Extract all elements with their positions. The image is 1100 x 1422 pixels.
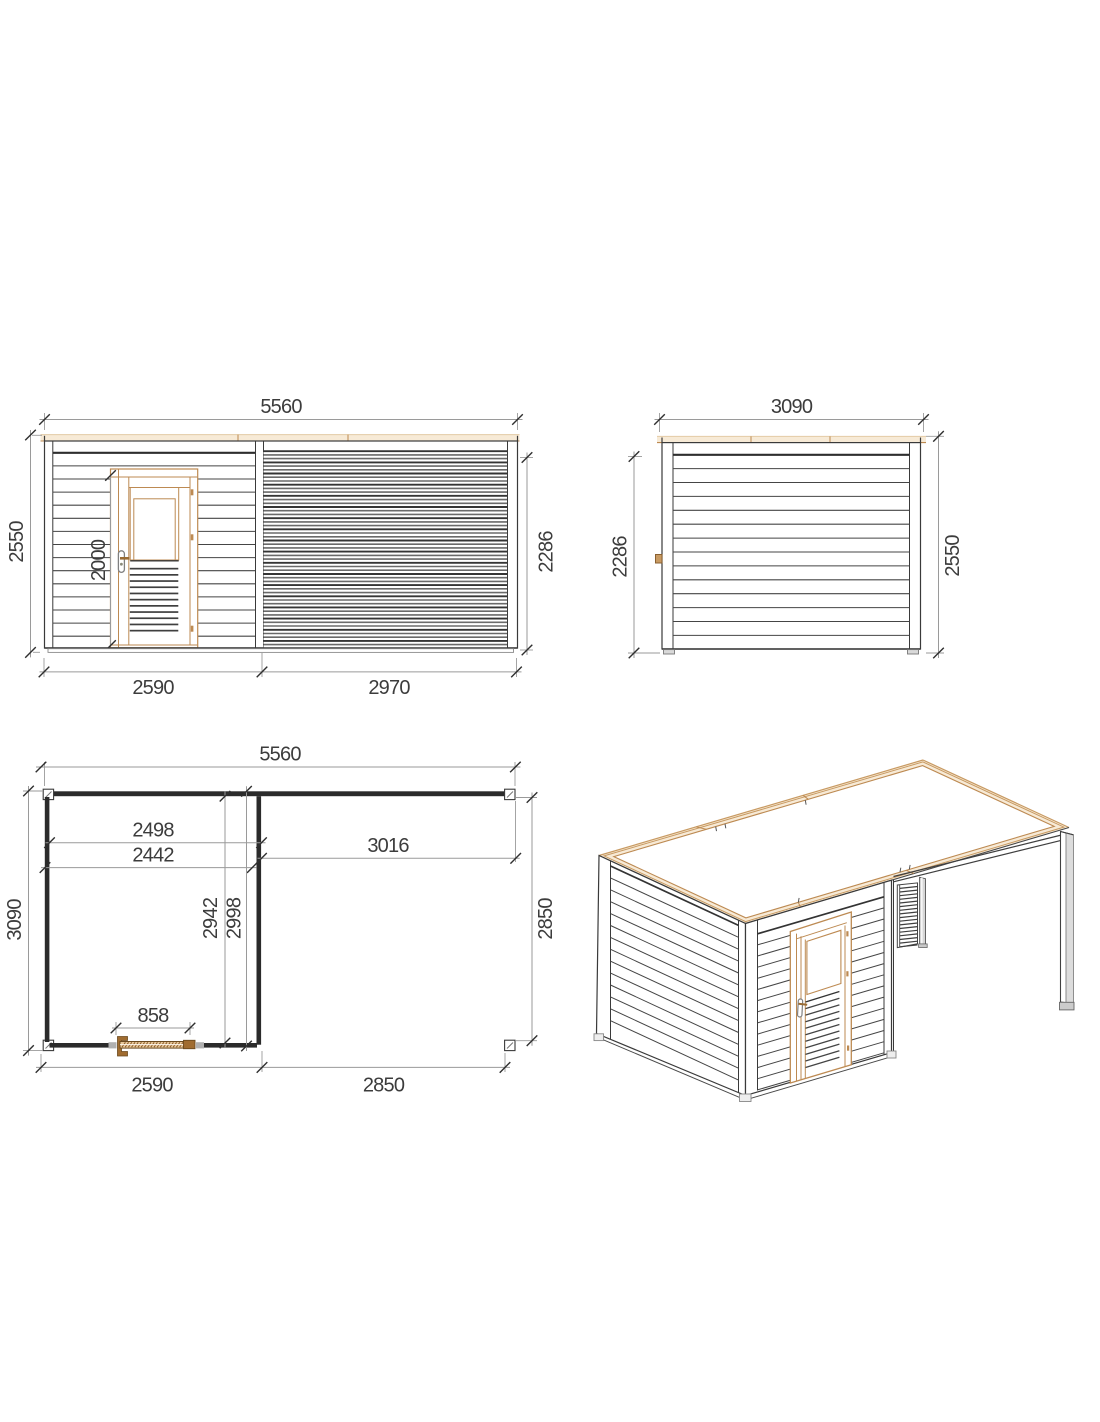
svg-text:5560: 5560: [259, 743, 301, 765]
svg-text:3016: 3016: [367, 835, 409, 857]
svg-text:2550: 2550: [942, 535, 964, 577]
svg-text:2998: 2998: [223, 897, 245, 939]
svg-text:5560: 5560: [260, 396, 302, 418]
svg-text:2850: 2850: [535, 898, 557, 940]
svg-text:2850: 2850: [363, 1074, 405, 1096]
svg-text:2550: 2550: [6, 521, 28, 563]
svg-text:2590: 2590: [132, 677, 174, 699]
svg-text:858: 858: [138, 1005, 170, 1027]
svg-text:2000: 2000: [88, 539, 110, 581]
svg-text:2970: 2970: [368, 677, 410, 699]
svg-text:2590: 2590: [131, 1074, 173, 1096]
svg-text:2286: 2286: [535, 531, 557, 573]
svg-text:3090: 3090: [771, 396, 813, 418]
svg-text:2498: 2498: [132, 819, 174, 841]
svg-text:3090: 3090: [4, 899, 26, 941]
svg-text:2286: 2286: [609, 536, 631, 578]
svg-text:2442: 2442: [132, 844, 174, 866]
svg-text:2942: 2942: [200, 897, 222, 939]
